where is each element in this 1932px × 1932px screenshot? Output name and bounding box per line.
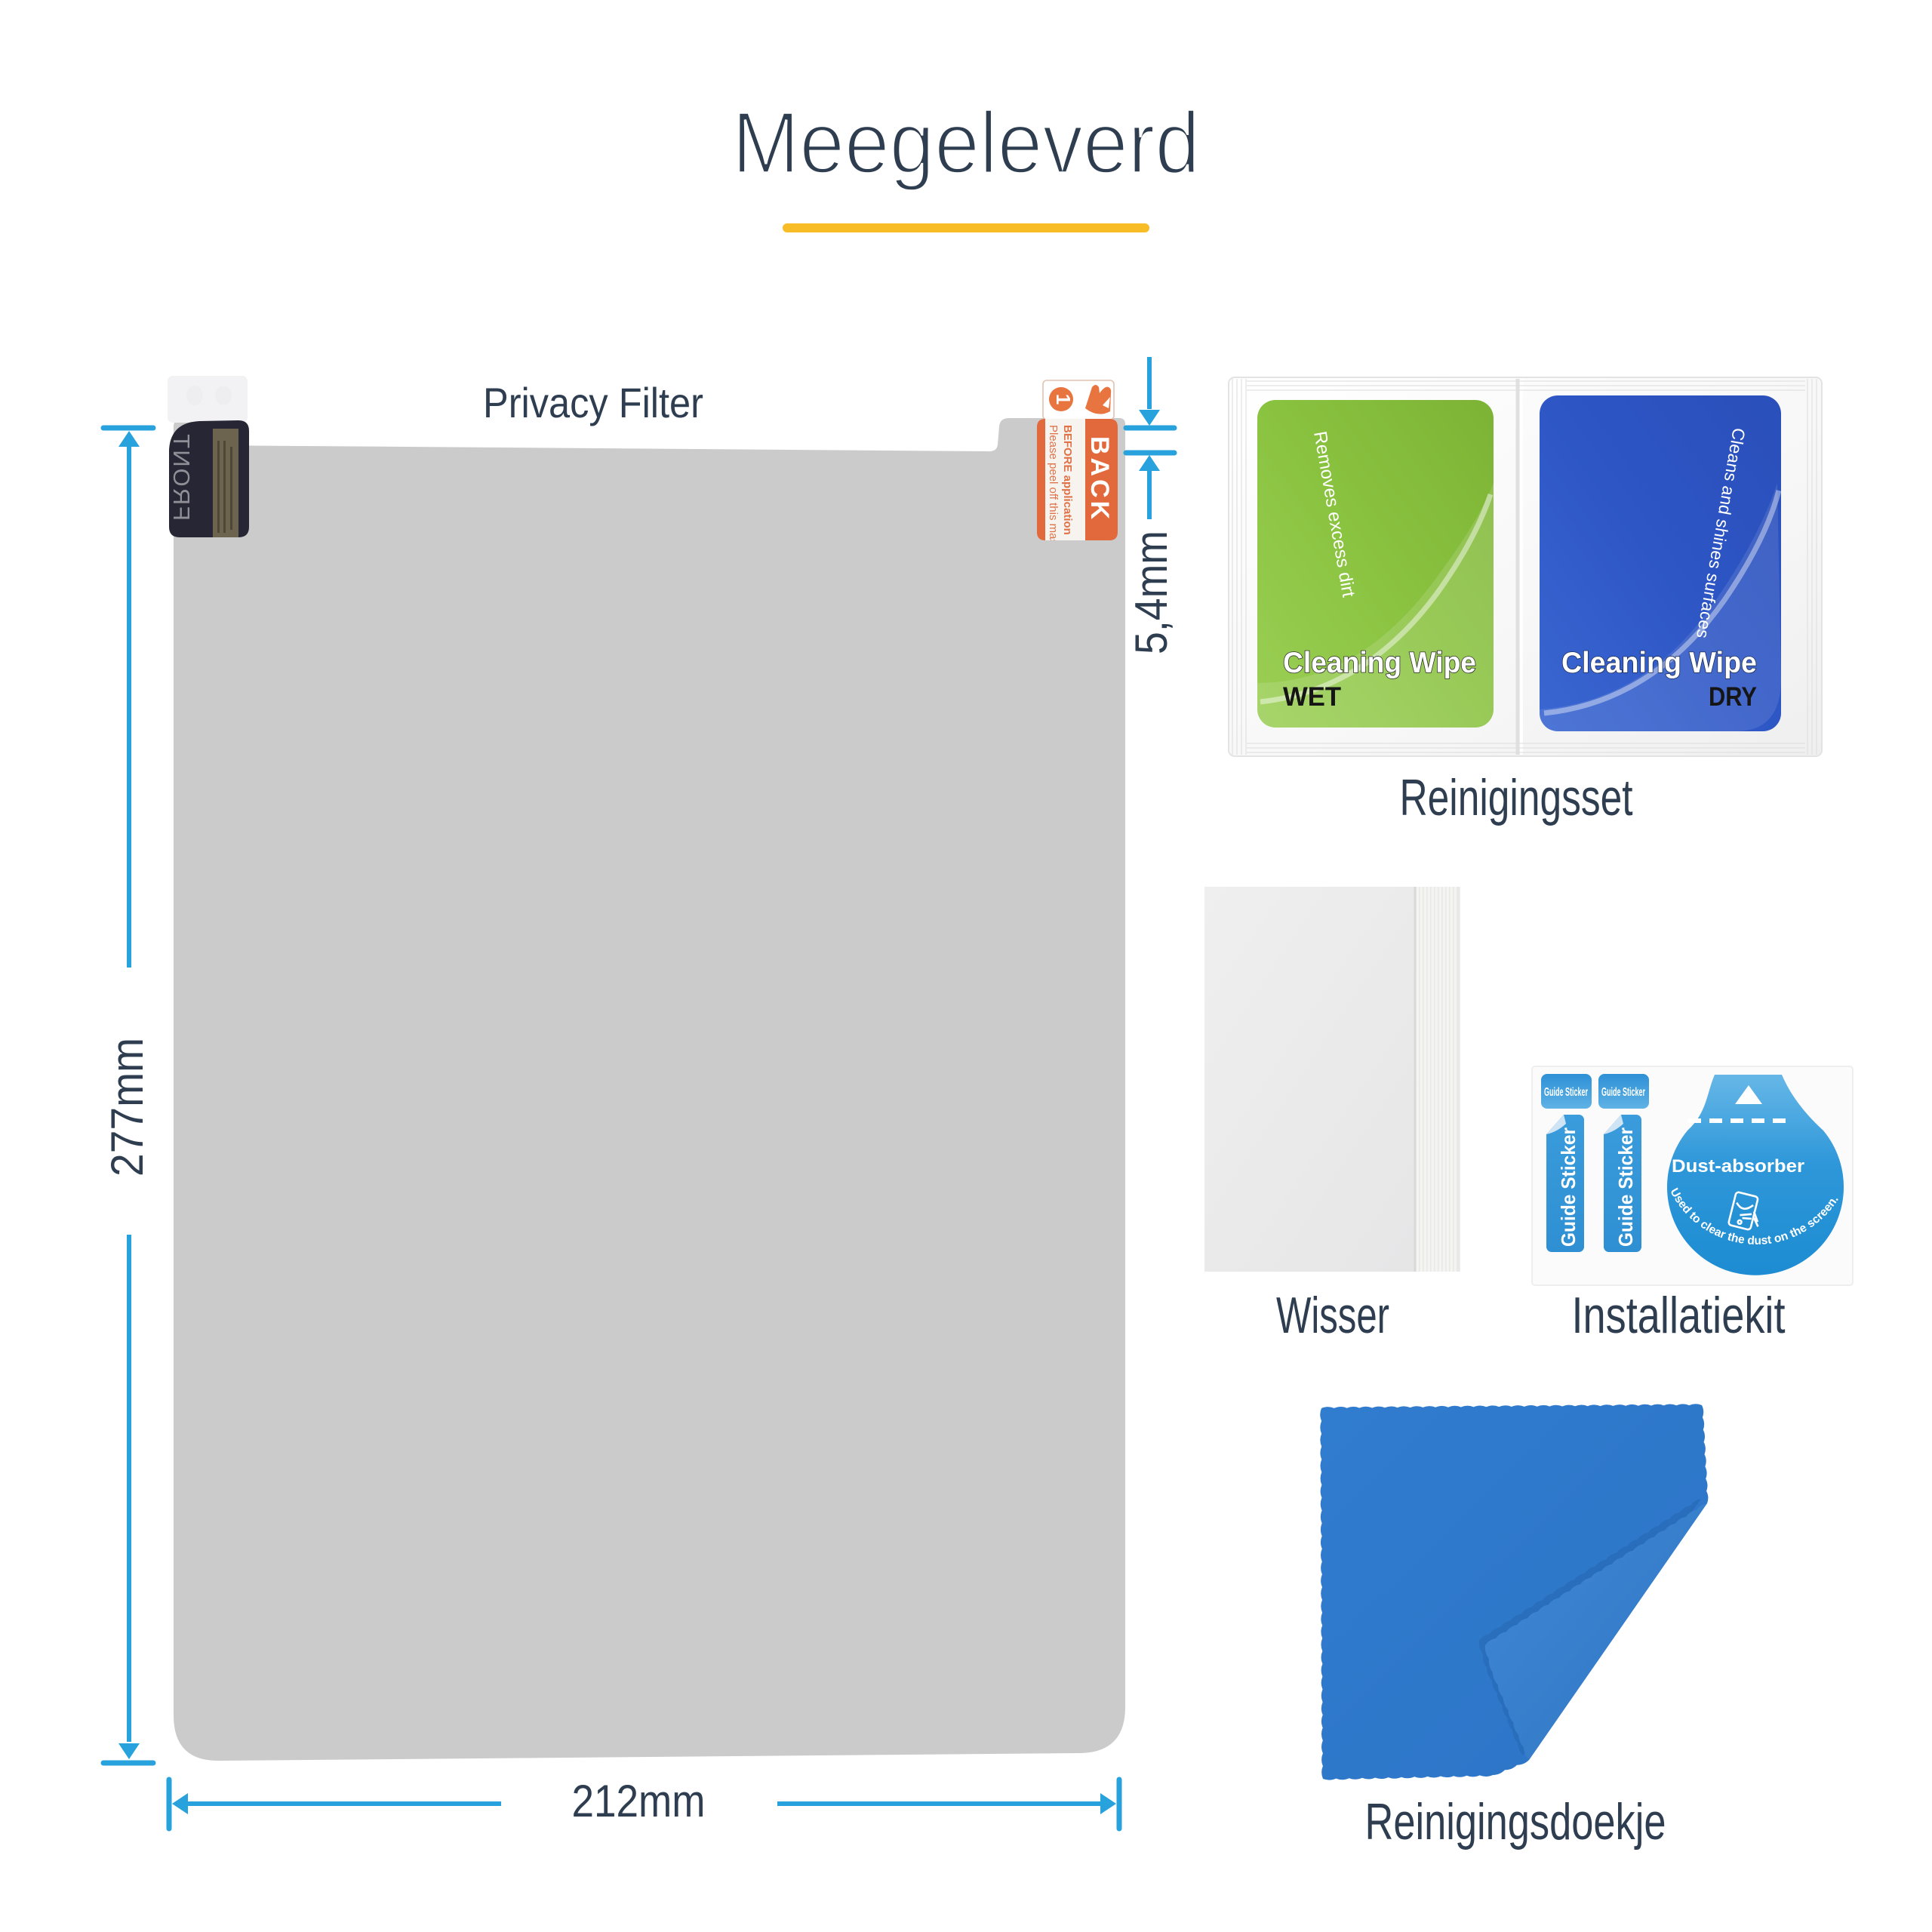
svg-text:Reinigingsdoekje: Reinigingsdoekje <box>1365 1793 1666 1850</box>
svg-text:Guide Sticker: Guide Sticker <box>1544 1086 1588 1099</box>
svg-text:1: 1 <box>1052 394 1075 405</box>
svg-text:212mm: 212mm <box>572 1776 706 1826</box>
svg-text:277mm: 277mm <box>102 1038 152 1177</box>
svg-text:Guide Sticker: Guide Sticker <box>1557 1128 1580 1247</box>
svg-text:Dust-absorber: Dust-absorber <box>1672 1156 1804 1177</box>
svg-text:5,4mm: 5,4mm <box>1126 531 1177 654</box>
svg-text:Installatiekit: Installatiekit <box>1572 1287 1786 1344</box>
svg-text:Guide Sticker: Guide Sticker <box>1601 1086 1645 1099</box>
svg-text:Wisser: Wisser <box>1276 1287 1389 1344</box>
svg-text:Guide Sticker: Guide Sticker <box>1614 1128 1637 1247</box>
svg-text:Please peel off this mask: Please peel off this mask <box>1047 425 1060 551</box>
svg-text:Reinigingsset: Reinigingsset <box>1400 769 1633 826</box>
svg-text:WET: WET <box>1283 682 1341 712</box>
svg-text:BACK: BACK <box>1085 436 1114 522</box>
svg-text:Meegeleverd: Meegeleverd <box>732 94 1200 192</box>
svg-text:DRY: DRY <box>1709 682 1757 712</box>
svg-text:Privacy Filter: Privacy Filter <box>483 379 703 426</box>
svg-text:Cleaning Wipe: Cleaning Wipe <box>1561 647 1757 679</box>
svg-text:Cleaning Wipe: Cleaning Wipe <box>1283 647 1476 679</box>
svg-text:BEFORE application: BEFORE application <box>1061 425 1074 535</box>
svg-text:FRONT: FRONT <box>168 432 195 521</box>
